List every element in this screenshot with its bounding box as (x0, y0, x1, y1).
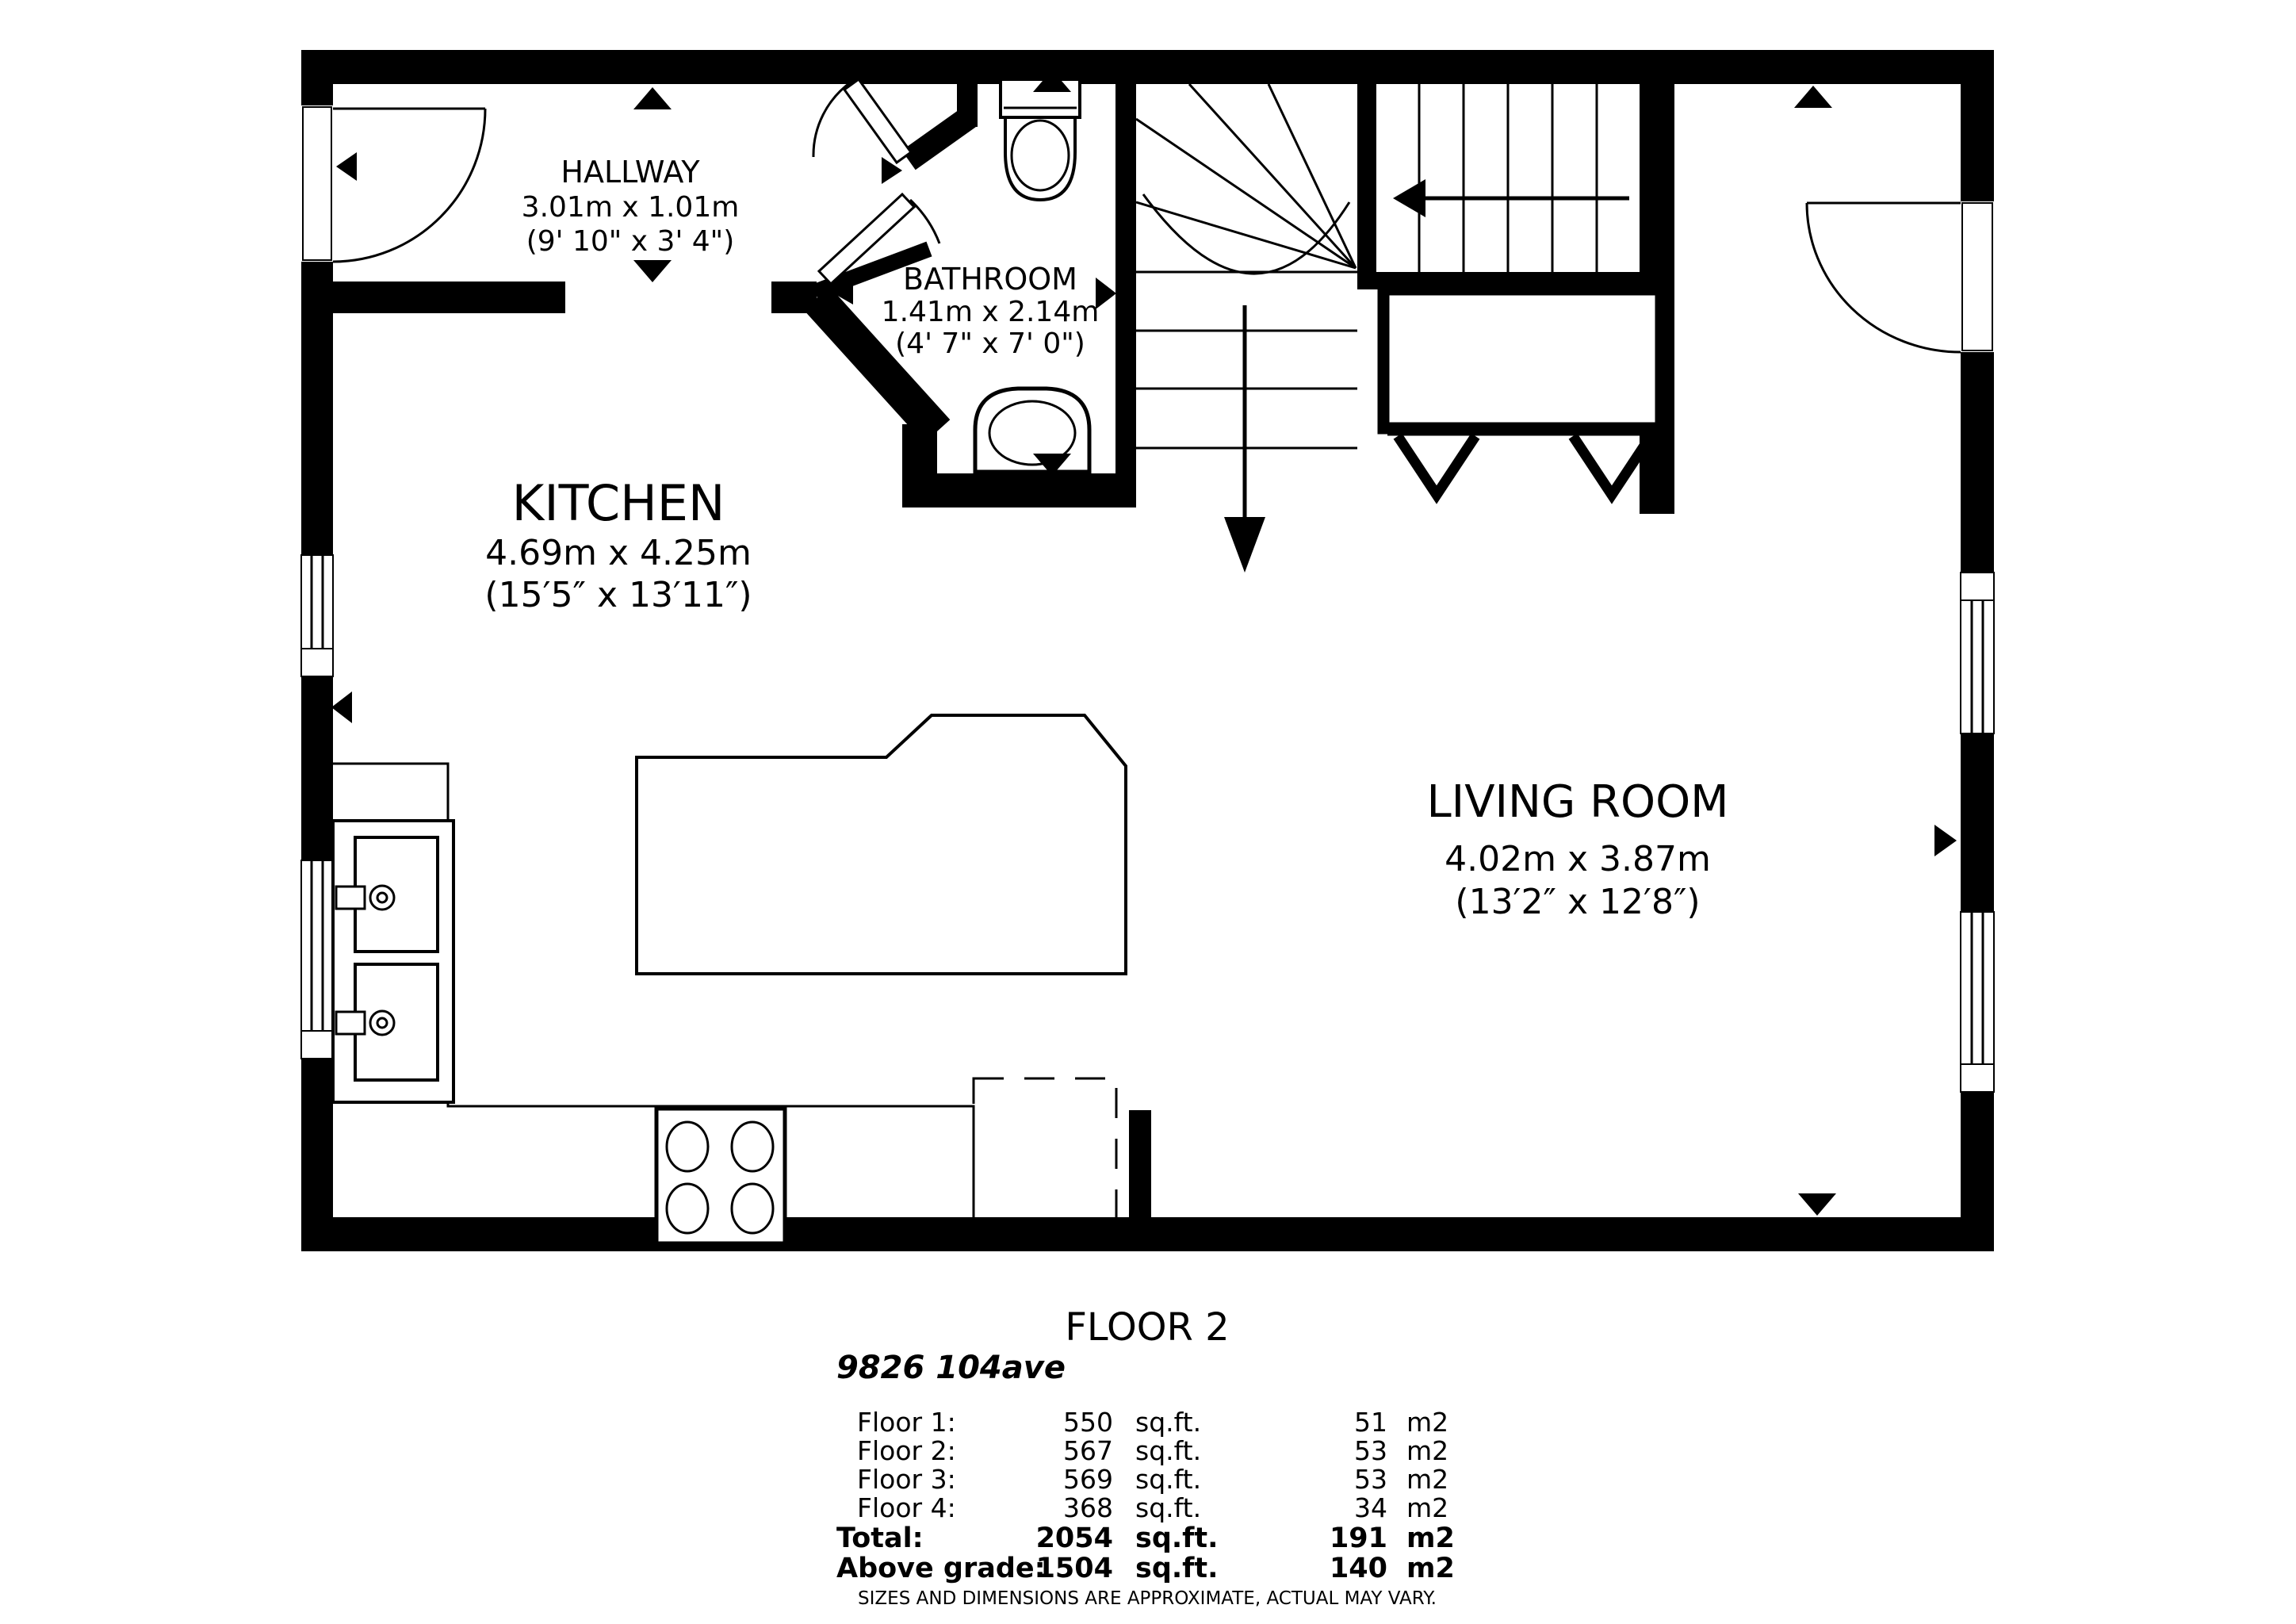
triangle-up-icon (633, 87, 672, 109)
wall-top (301, 50, 1994, 84)
triangle-up-icon (1794, 86, 1832, 108)
wall-bathroom-bottom (902, 473, 1136, 507)
footer: FLOOR 2 9826 104ave Floor 1: 550 sq.ft. … (836, 1305, 1455, 1609)
floor-title: FLOOR 2 (1065, 1305, 1229, 1350)
svg-text:sq.ft.: sq.ft. (1135, 1553, 1218, 1584)
window-right-1-jamb (1961, 573, 1994, 600)
svg-text:Total:: Total: (836, 1522, 924, 1554)
room-dim-imperial: (9' 10" x 3' 4") (526, 225, 735, 258)
wall-bathroom-left (902, 424, 937, 480)
closet-box (1383, 289, 1661, 428)
floor-plan-canvas: HALLWAY 3.01m x 1.01m (9' 10" x 3' 4") B… (0, 0, 2296, 1624)
window-right-2-jamb (1961, 1064, 1994, 1092)
door-jamb (1962, 203, 1992, 350)
window-left-2-jamb (301, 1031, 333, 1059)
bifold-closet-doors (1573, 436, 1651, 495)
svg-text:368: 368 (1063, 1492, 1113, 1523)
area-table: Floor 1: 550 sq.ft. 51 m2 Floor 2: 567 s… (836, 1407, 1455, 1584)
svg-text:191: 191 (1330, 1522, 1387, 1554)
dashed-appliance-box (974, 1078, 1116, 1228)
triangle-left-icon (331, 691, 352, 723)
svg-text:569: 569 (1063, 1464, 1113, 1495)
wall-right-seg (1961, 1092, 1994, 1251)
door-jamb (303, 107, 331, 260)
bifold-closet-doors (1398, 436, 1475, 495)
sink-icon (975, 389, 1089, 472)
svg-text:m2: m2 (1406, 1435, 1448, 1466)
wall-stair-divider (1357, 84, 1376, 289)
window-right-2 (1961, 912, 1994, 1064)
room-dim-metric: 1.41m x 2.14m (882, 296, 1100, 328)
room-dim-metric: 4.69m x 4.25m (485, 533, 752, 573)
kitchen-island (637, 715, 1126, 974)
room-dim-imperial: (13′2″ x 12′8″) (1455, 882, 1700, 922)
svg-text:m2: m2 (1406, 1492, 1448, 1523)
svg-text:sq.ft.: sq.ft. (1135, 1464, 1201, 1495)
room-label-living-room: LIVING ROOM 4.02m x 3.87m (13′2″ x 12′8″… (1426, 776, 1728, 922)
svg-text:sq.ft.: sq.ft. (1135, 1492, 1201, 1523)
room-dim-metric: 4.02m x 3.87m (1445, 839, 1711, 879)
door-leaf (844, 79, 911, 163)
triangle-right-icon (1934, 825, 1957, 856)
table-row: Floor 2: 567 sq.ft. 53 m2 (857, 1435, 1448, 1466)
stairs-arrow-head (1224, 517, 1265, 573)
svg-text:m2: m2 (1406, 1407, 1448, 1438)
room-name: BATHROOM (903, 262, 1077, 297)
svg-text:Floor 3:: Floor 3: (857, 1464, 956, 1495)
wall-left-seg (301, 50, 333, 105)
windows (301, 555, 1994, 1092)
svg-text:m2: m2 (1406, 1522, 1455, 1554)
closet (1383, 289, 1661, 495)
room-label-kitchen: KITCHEN 4.69m x 4.25m (15′5″ x 13′11″) (484, 474, 752, 615)
svg-text:53: 53 (1354, 1435, 1387, 1466)
table-row: Floor 4: 368 sq.ft. 34 m2 (857, 1492, 1448, 1523)
svg-text:sq.ft.: sq.ft. (1135, 1435, 1201, 1466)
svg-text:m2: m2 (1406, 1464, 1448, 1495)
address: 9826 104ave (836, 1350, 1066, 1386)
room-name: HALLWAY (561, 155, 700, 190)
wall-left-seg (301, 1059, 333, 1251)
wall-right-seg (1961, 733, 1994, 912)
room-name: LIVING ROOM (1426, 776, 1728, 828)
triangle-down-icon (633, 260, 672, 282)
svg-text:2054: 2054 (1036, 1522, 1113, 1554)
window-left-1-jamb (301, 649, 333, 676)
svg-text:1504: 1504 (1036, 1553, 1113, 1584)
svg-text:Floor 1:: Floor 1: (857, 1407, 956, 1438)
door-swing-icon (333, 109, 485, 262)
room-dim-imperial: (15′5″ x 13′11″) (484, 575, 752, 615)
room-dim-metric: 3.01m x 1.01m (522, 191, 740, 224)
svg-text:550: 550 (1063, 1407, 1113, 1438)
stairs-arrow-head (1393, 179, 1425, 217)
room-name: KITCHEN (512, 474, 725, 532)
living-room-door (1807, 203, 1992, 352)
svg-text:51: 51 (1354, 1407, 1387, 1438)
table-row-total: Total: 2054 sq.ft. 191 m2 (836, 1522, 1455, 1554)
wall-bottom (301, 1217, 1994, 1251)
wall-kitchen-stub (1129, 1110, 1151, 1217)
door-swing-icon (1807, 203, 1961, 352)
double-sink-icon (333, 821, 453, 1102)
table-row-above-grade: Above grade: 1504 sq.ft. 140 m2 (836, 1553, 1455, 1584)
wall-left-seg (301, 262, 333, 555)
disclaimer: SIZES AND DIMENSIONS ARE APPROXIMATE, AC… (858, 1588, 1437, 1609)
svg-text:34: 34 (1354, 1492, 1387, 1523)
window-left-2 (301, 860, 333, 1031)
wall-vestibule-diagonal (909, 117, 969, 160)
svg-text:140: 140 (1330, 1553, 1387, 1584)
table-row: Floor 1: 550 sq.ft. 51 m2 (857, 1407, 1448, 1438)
room-label-hallway: HALLWAY 3.01m x 1.01m (9' 10" x 3' 4") (522, 155, 740, 258)
wall-right-seg (1961, 50, 1994, 201)
entry-door (303, 107, 485, 262)
svg-text:Above grade:: Above grade: (836, 1553, 1046, 1584)
stove-burners-icon (656, 1109, 785, 1243)
table-row: Floor 3: 569 sq.ft. 53 m2 (857, 1464, 1448, 1495)
svg-text:sq.ft.: sq.ft. (1135, 1522, 1218, 1554)
svg-text:m2: m2 (1406, 1553, 1455, 1584)
svg-text:Floor 4:: Floor 4: (857, 1492, 956, 1523)
toilet-icon (1001, 79, 1080, 200)
room-dim-imperial: (4' 7" x 7' 0") (895, 327, 1085, 360)
room-label-bathroom: BATHROOM 1.41m x 2.14m (4' 7" x 7' 0") (882, 262, 1100, 360)
svg-text:sq.ft.: sq.ft. (1135, 1407, 1201, 1438)
svg-text:Floor 2:: Floor 2: (857, 1435, 956, 1466)
wall-bathroom-right (1115, 84, 1136, 507)
svg-text:53: 53 (1354, 1464, 1387, 1495)
winder-walk-line (1143, 194, 1349, 274)
triangle-down-icon (1798, 1193, 1836, 1216)
wall-hallway (333, 282, 565, 313)
window-left-1 (301, 555, 333, 649)
svg-text:567: 567 (1063, 1435, 1113, 1466)
wall-left-seg (301, 676, 333, 860)
wall-right-seg (1961, 352, 1994, 573)
window-right-1 (1961, 600, 1994, 733)
triangle-left-icon (336, 152, 357, 181)
